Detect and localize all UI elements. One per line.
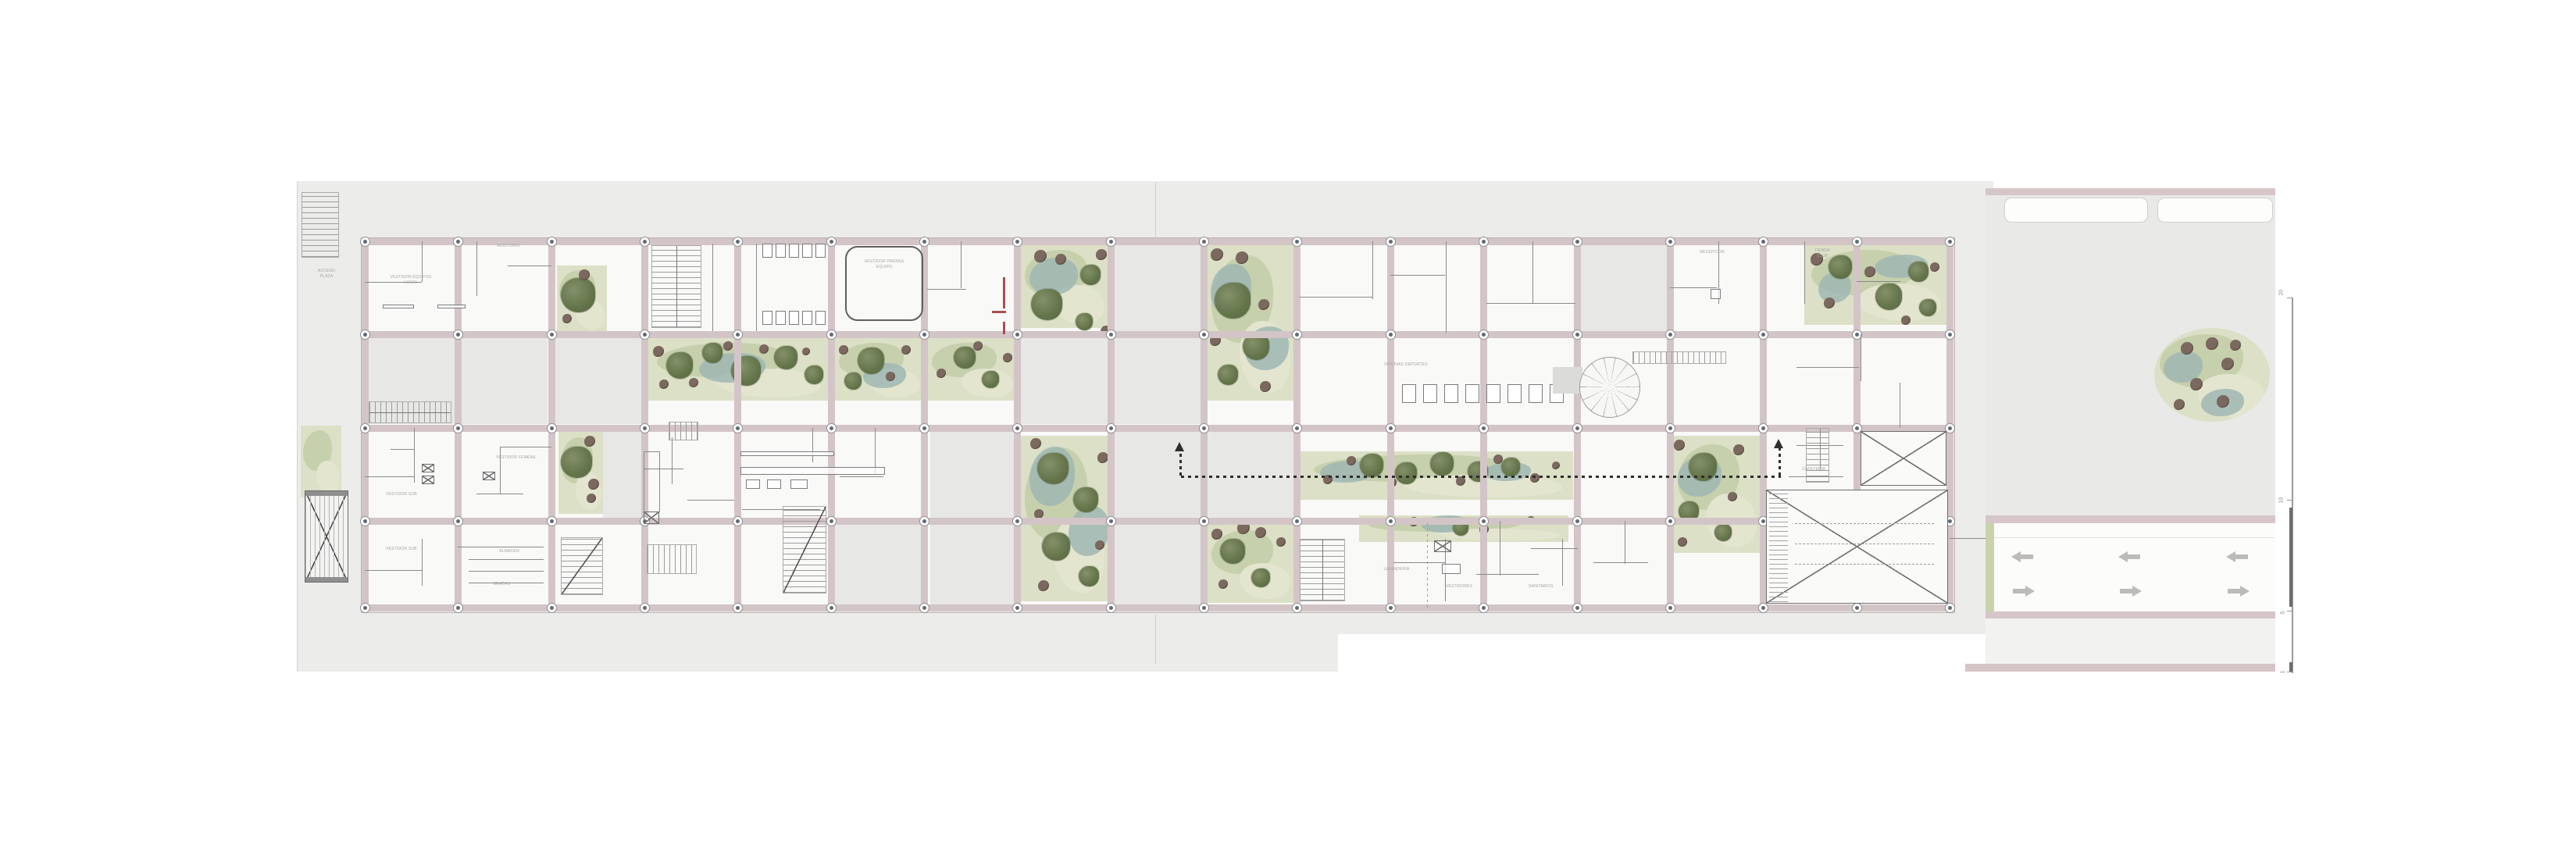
column-marker (1012, 603, 1022, 613)
column-marker (1292, 603, 1302, 613)
room-wall (1446, 241, 1447, 333)
room-wall (1900, 383, 1900, 428)
room-wall (840, 476, 883, 477)
column-marker (1292, 423, 1302, 433)
column-marker (1852, 603, 1862, 613)
furniture (1711, 289, 1721, 299)
column-marker (1758, 423, 1768, 433)
grid-beam-horizontal (361, 604, 1953, 611)
scale-bar-tick (2287, 611, 2292, 611)
sanitary-fixture (802, 311, 812, 325)
room-label: VESTIDOR EQUIPOS LOCAL (367, 275, 455, 285)
room-label: ACCESO PLAZA (301, 269, 351, 279)
street-bottom-curb (1986, 611, 2275, 618)
column-marker (1292, 516, 1302, 526)
column-marker (826, 237, 837, 247)
column-marker (360, 423, 370, 433)
room-wall (1476, 574, 1539, 575)
door-symbol (483, 472, 495, 480)
scale-bar-tick (2287, 298, 2292, 298)
furniture (740, 467, 885, 475)
room-wall (1950, 538, 1986, 539)
column-marker (453, 330, 463, 340)
column-marker (1106, 603, 1116, 613)
room-label: VESTIDOR SUB (372, 547, 431, 552)
path-dotted-line (1181, 476, 1781, 478)
sanitary-fixture (1444, 384, 1458, 403)
column-marker (360, 516, 370, 526)
room-wall (414, 428, 415, 483)
room-wall (458, 547, 544, 547)
column-marker (640, 603, 650, 613)
room-wall (1670, 287, 1717, 288)
scale-label: 20 (2279, 285, 2285, 296)
room-label: VESTIDOR SUB (372, 492, 431, 497)
room-label: LAVANDERÍA (1358, 567, 1436, 572)
room-label: RECEPCIÓN (1673, 250, 1751, 255)
planter (2157, 198, 2273, 223)
floor-plan-canvas: 201051VESTIDOR EQUIPOS LOCALAUDITORIOVES… (0, 0, 2576, 859)
room-label: CAFETERÍA (1775, 467, 1853, 472)
elevator-x (644, 511, 659, 524)
room-wall (1300, 297, 1373, 298)
column-marker (733, 516, 743, 526)
spiral-stair (1579, 357, 1640, 418)
sanitary-fixture (1507, 384, 1522, 403)
stair (783, 506, 826, 593)
room-wall (422, 539, 423, 586)
column-marker (1012, 423, 1022, 433)
grid-beam-horizontal (361, 425, 1953, 432)
plaza-top-wall (1986, 188, 2275, 195)
column-marker (733, 603, 743, 613)
column-marker (1199, 423, 1209, 433)
room-wall (1593, 562, 1648, 563)
column-marker (453, 237, 463, 247)
street-arrow-right-icon (2226, 586, 2250, 597)
sanitary-fixture (762, 244, 772, 258)
furniture (746, 479, 760, 489)
room-wall (365, 476, 414, 477)
room-wall (644, 469, 683, 469)
spiral-stair-platform (1553, 367, 1582, 394)
stair (369, 401, 451, 423)
room-wall (1393, 562, 1445, 563)
furniture (383, 305, 414, 308)
furniture (1442, 564, 1461, 574)
room-wall (476, 241, 477, 296)
column-marker (453, 423, 463, 433)
column-marker (826, 423, 837, 433)
door-symbol (1434, 540, 1451, 552)
room-wall (476, 494, 523, 494)
column-marker (1479, 423, 1489, 433)
column-marker (826, 603, 837, 613)
column-marker (453, 603, 463, 613)
sanitary-fixture (802, 244, 812, 258)
column-marker (1852, 237, 1862, 247)
column-marker (547, 603, 557, 613)
scale-label: 5 (2281, 604, 2286, 615)
column-marker (919, 330, 929, 340)
column-marker (453, 516, 463, 526)
column-marker (1479, 330, 1489, 340)
column-marker (1106, 516, 1116, 526)
stair (651, 245, 701, 328)
column-marker (640, 330, 650, 340)
planter (2004, 198, 2148, 223)
column-marker (1106, 423, 1116, 433)
hall-x (1861, 431, 1946, 486)
room-wall (500, 447, 501, 494)
column-marker (1106, 330, 1116, 340)
room-wall (644, 451, 644, 512)
sanitary-fixture (1529, 384, 1543, 403)
red-wall (1003, 277, 1005, 308)
column-marker (360, 603, 370, 613)
column-marker (919, 237, 929, 247)
street-arrow-left-icon (2226, 551, 2250, 562)
column-marker (1292, 330, 1302, 340)
sanitary-fixture (789, 311, 799, 325)
column-marker (1665, 330, 1675, 340)
room-wall (1796, 367, 1859, 368)
column-marker (733, 330, 743, 340)
column-marker (1945, 237, 1955, 247)
column-marker (1758, 330, 1768, 340)
column-marker (733, 423, 743, 433)
door-symbol (422, 476, 434, 484)
sanitary-fixture (789, 244, 799, 258)
void-ramp-x (305, 490, 348, 583)
room-label: VESTIDORES (1428, 584, 1490, 590)
room-label: OFICINAS DEPORTES (1328, 362, 1484, 368)
room-wall (391, 449, 414, 450)
street-center-dash (1994, 537, 2275, 538)
column-marker (1572, 516, 1582, 526)
scale-bar-line (2292, 298, 2293, 673)
door-symbol (422, 464, 434, 472)
grid-beam-horizontal (361, 518, 1953, 525)
column-marker (826, 516, 837, 526)
stair (669, 422, 698, 440)
room-wall (365, 570, 422, 571)
room-wall (712, 244, 713, 331)
column-marker (1572, 330, 1582, 340)
room-wall (1562, 539, 1563, 586)
site-edge-line (297, 181, 298, 672)
column-marker (1665, 603, 1675, 613)
sanitary-fixture (1423, 384, 1437, 403)
sanitary-fixture (815, 311, 826, 325)
sanitary-fixture (1402, 384, 1416, 403)
stair (647, 544, 697, 574)
column-marker (919, 603, 929, 613)
section-cut-line (1155, 615, 1156, 664)
stair (561, 537, 603, 595)
scale-bar-segment (2289, 662, 2292, 672)
path-arrow-icon (1774, 439, 1783, 448)
column-marker (1479, 237, 1489, 247)
column-marker (1292, 237, 1302, 247)
room-wall (659, 451, 660, 512)
column-marker (1199, 603, 1209, 613)
scale-bar-segment (2289, 508, 2292, 607)
sidewalk-band (1986, 618, 2275, 664)
column-marker (919, 423, 929, 433)
column-marker (1665, 423, 1675, 433)
stair (1806, 428, 1829, 483)
column-marker (1572, 423, 1582, 433)
room-wall (644, 451, 659, 452)
room-label: VESTIDOR FEMENIL (473, 455, 559, 461)
column-marker (1758, 237, 1768, 247)
path-arrow-icon (1175, 442, 1184, 451)
column-marker (1012, 516, 1022, 526)
column-marker (1386, 516, 1396, 526)
room-wall (1486, 303, 1575, 304)
room-wall (1390, 275, 1445, 276)
site-bottom-wall (1965, 664, 2275, 672)
column-marker (1199, 516, 1209, 526)
room-wall (1532, 241, 1533, 304)
path-dashed-stub (1179, 451, 1182, 476)
site-ground-step (1338, 634, 1993, 672)
room-wall (1500, 521, 1500, 576)
room-wall (469, 571, 544, 572)
column-marker (1665, 237, 1675, 247)
street-lane (1986, 523, 2275, 611)
room-wall (672, 437, 673, 484)
furniture (740, 451, 834, 456)
entry-steps (301, 192, 339, 258)
column-marker (1106, 237, 1116, 247)
scale-label: 10 (2279, 493, 2285, 504)
sanitary-fixture (776, 244, 786, 258)
sanitary-fixture (776, 311, 786, 325)
street-arrow-left-icon (2118, 551, 2142, 562)
column-marker (1386, 603, 1396, 613)
grid-beam-horizontal (361, 331, 1953, 338)
section-cut-line (1155, 182, 1156, 237)
room-dashed-line (1427, 521, 1428, 608)
column-marker (640, 423, 650, 433)
red-wall (1003, 322, 1005, 334)
room-wall (1531, 548, 1578, 549)
room-label: AUDITORIO (466, 244, 551, 249)
column-marker (360, 237, 370, 247)
sanitary-fixture (815, 244, 826, 258)
street-arrow-right-icon (2118, 586, 2142, 597)
column-marker (1945, 330, 1955, 340)
column-marker (547, 516, 557, 526)
column-marker (1386, 237, 1396, 247)
column-marker (1386, 423, 1396, 433)
column-marker (547, 330, 557, 340)
column-marker (1572, 603, 1582, 613)
room-wall (1372, 241, 1373, 299)
column-marker (640, 237, 650, 247)
stair (1632, 351, 1726, 364)
stair (1300, 539, 1345, 601)
room-label: GRADAS (473, 582, 530, 587)
red-wall (992, 311, 1006, 313)
grid-beam-horizontal (361, 238, 1953, 245)
street-green-verge (1986, 523, 1994, 611)
sanitary-fixture (762, 311, 772, 325)
furniture (790, 479, 808, 489)
room-wall (1861, 334, 1861, 381)
room-label: VESTIDOR PRENSA EQUIPO (844, 259, 925, 269)
room-label: TIENDA CLUB (1787, 248, 1857, 258)
column-marker (547, 423, 557, 433)
street-top-curb (1986, 515, 2275, 523)
column-marker (1479, 603, 1489, 613)
room-wall (1857, 281, 1900, 282)
room-wall (469, 559, 544, 560)
scale-bar-tick (2287, 672, 2292, 672)
scale-label: 1 (2281, 663, 2286, 674)
column-marker (1386, 330, 1396, 340)
column-marker (1758, 603, 1768, 613)
scale-bar-tick (2287, 500, 2292, 501)
rounded-room (845, 246, 923, 321)
column-marker (1572, 237, 1582, 247)
column-marker (1945, 603, 1955, 613)
furniture (437, 305, 466, 308)
column-marker (1479, 516, 1489, 526)
column-marker (1199, 330, 1209, 340)
room-wall (500, 447, 551, 447)
room-wall (927, 289, 966, 290)
room-wall (508, 266, 551, 266)
room-wall (687, 500, 734, 501)
street-arrow-right-icon (2011, 586, 2035, 597)
column-marker (919, 516, 929, 526)
column-marker (733, 237, 743, 247)
street-arrow-left-icon (2011, 551, 2035, 562)
double-height-hall-x (1766, 490, 1948, 604)
room-wall (1625, 521, 1625, 564)
furniture (767, 479, 781, 489)
column-marker (1199, 237, 1209, 247)
column-marker (1665, 516, 1675, 526)
garden-annex (301, 426, 341, 497)
room-wall (756, 244, 757, 331)
room-label: ALMACÉN (478, 549, 541, 554)
room-label: SANITARIOS (1510, 584, 1572, 590)
sanitary-fixture (1465, 384, 1479, 403)
column-marker (360, 330, 370, 340)
room-wall (961, 241, 962, 288)
column-marker (826, 330, 837, 340)
sanitary-fixture (1486, 384, 1500, 403)
column-marker (1012, 237, 1022, 247)
column-marker (1012, 330, 1022, 340)
room-wall (812, 428, 813, 462)
